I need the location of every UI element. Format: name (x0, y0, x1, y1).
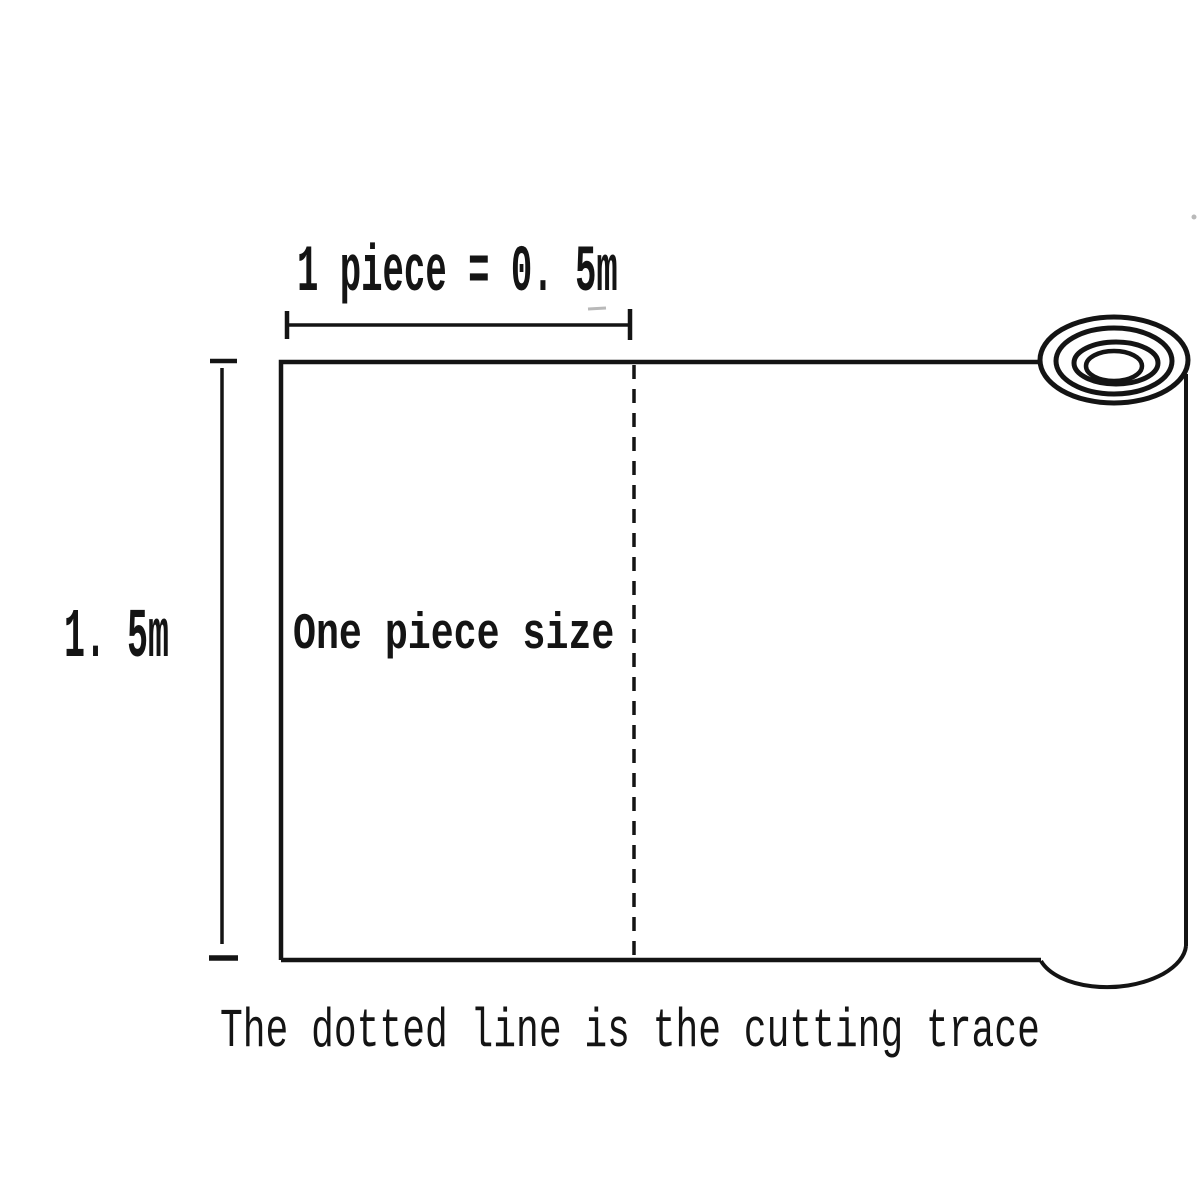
stray-dot (1192, 215, 1197, 220)
diagram-canvas: 1 piece = 0. 5m 1. 5m One piece size The… (0, 0, 1200, 1200)
sheet-curl-curve (1041, 946, 1186, 987)
piece-size-label: One piece size (293, 610, 614, 661)
left-dimension-bracket (209, 361, 238, 958)
top-dimension-bracket (287, 308, 630, 340)
top-dimension-label: 1 piece = 0. 5m (297, 240, 618, 306)
roll-ring-inner (1086, 351, 1142, 381)
paper-roll-icon (1040, 317, 1188, 403)
sheet-outline (281, 362, 1186, 987)
left-dimension-label: 1. 5m (64, 604, 169, 674)
caption-text: The dotted line is the cutting trace (220, 1004, 1040, 1059)
